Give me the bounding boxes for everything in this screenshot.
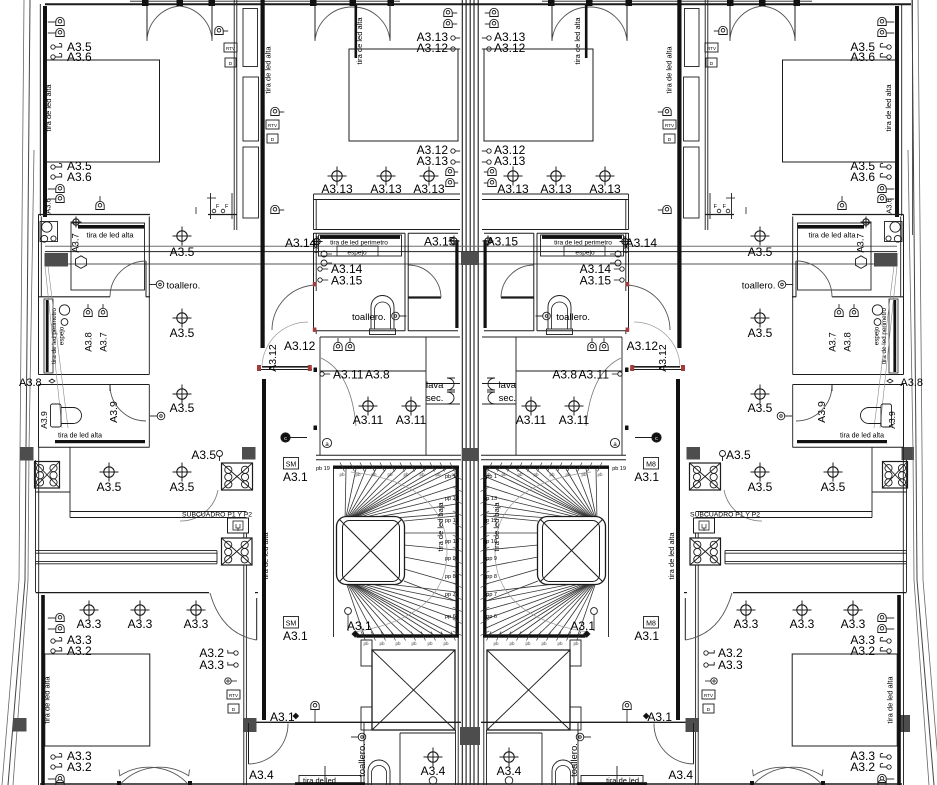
svg-text:tira de led alta: tira de led alta xyxy=(264,46,273,94)
svg-text:pp 7: pp 7 xyxy=(486,592,497,598)
svg-text:A3.5: A3.5 xyxy=(170,401,195,415)
svg-text:A3.15: A3.15 xyxy=(424,235,456,249)
svg-text:pb: pb xyxy=(411,641,417,646)
svg-text:A3.6: A3.6 xyxy=(67,50,92,64)
svg-text:A3.6: A3.6 xyxy=(850,170,875,184)
svg-text:A3.3: A3.3 xyxy=(77,617,102,631)
svg-text:pb: pb xyxy=(443,641,449,646)
svg-text:A3.11: A3.11 xyxy=(396,413,427,427)
svg-text:A3.9: A3.9 xyxy=(887,411,897,429)
svg-text:lava: lava xyxy=(426,380,444,391)
svg-text:A3.1: A3.1 xyxy=(270,710,295,724)
svg-text:A3.12: A3.12 xyxy=(627,339,659,353)
svg-text:A3.5: A3.5 xyxy=(170,326,195,340)
svg-text:espejo: espejo xyxy=(874,326,881,345)
svg-text:A3.8: A3.8 xyxy=(843,332,854,352)
svg-text:A3.5: A3.5 xyxy=(748,480,773,494)
svg-text:SM: SM xyxy=(286,621,297,628)
svg-text:pb 19: pb 19 xyxy=(612,466,626,472)
svg-text:pb: pb xyxy=(355,472,361,477)
svg-text:toallero.: toallero. xyxy=(357,743,368,777)
svg-text:tira de led alta: tira de led alta xyxy=(43,676,52,724)
svg-text:tira de led alta: tira de led alta xyxy=(261,532,270,580)
svg-text:pp 6: pp 6 xyxy=(445,614,456,620)
svg-text:D: D xyxy=(232,707,236,713)
svg-text:A3.13: A3.13 xyxy=(494,154,526,168)
svg-text:pp 9: pp 9 xyxy=(445,556,456,562)
svg-text:sec.: sec. xyxy=(499,393,516,404)
svg-text:A3.9: A3.9 xyxy=(108,401,120,423)
svg-text:A3.5: A3.5 xyxy=(748,401,773,415)
svg-text:tira de led alta: tira de led alta xyxy=(808,231,856,240)
svg-text:pp 10: pp 10 xyxy=(445,539,459,545)
svg-text:tira de led alta: tira de led alta xyxy=(840,433,884,440)
svg-text:tira de led perimetro: tira de led perimetro xyxy=(330,240,388,247)
svg-text:A3.2: A3.2 xyxy=(67,644,92,658)
svg-text:A3.2: A3.2 xyxy=(850,644,875,658)
svg-text:pp 8: pp 8 xyxy=(445,574,456,580)
svg-text:pb 1: pb 1 xyxy=(486,474,497,480)
svg-text:pb: pb xyxy=(573,641,579,646)
svg-text:tira de led alta: tira de led alta xyxy=(886,676,895,724)
svg-text:pb 1: pb 1 xyxy=(445,474,456,480)
svg-text:pb: pb xyxy=(379,641,385,646)
svg-text:A3.11: A3.11 xyxy=(579,368,610,382)
svg-text:A3.5: A3.5 xyxy=(191,448,216,462)
svg-text:A3.12: A3.12 xyxy=(494,41,526,55)
svg-text:A3.11: A3.11 xyxy=(559,413,590,427)
svg-text:pb: pb xyxy=(533,472,539,477)
svg-text:RTV: RTV xyxy=(665,123,674,128)
svg-text:A3.14: A3.14 xyxy=(285,236,317,250)
svg-text:A3.8: A3.8 xyxy=(84,332,95,352)
svg-text:M8: M8 xyxy=(646,462,656,469)
svg-text:A3.3: A3.3 xyxy=(790,617,815,631)
svg-text:D: D xyxy=(710,61,714,67)
svg-text:pb: pb xyxy=(541,641,547,646)
svg-text:A3.6: A3.6 xyxy=(44,198,53,213)
svg-text:pb: pb xyxy=(557,641,563,646)
svg-text:tira de led perimetro: tira de led perimetro xyxy=(554,240,612,247)
svg-text:A3.15: A3.15 xyxy=(487,235,519,249)
svg-text:A3.2: A3.2 xyxy=(850,760,875,774)
svg-text:A3.4: A3.4 xyxy=(249,768,274,782)
svg-text:M8: M8 xyxy=(646,621,656,628)
svg-text:A3.1: A3.1 xyxy=(283,470,308,484)
svg-text:pb: pb xyxy=(371,472,377,477)
svg-text:pb: pb xyxy=(403,472,409,477)
svg-text:A3.7: A3.7 xyxy=(71,233,82,253)
svg-text:A3.8: A3.8 xyxy=(365,368,390,382)
svg-text:pp 13: pp 13 xyxy=(483,496,497,502)
svg-text:A3.15: A3.15 xyxy=(580,274,612,288)
svg-text:pb: pb xyxy=(435,472,441,477)
svg-text:SM: SM xyxy=(286,462,297,469)
svg-text:pp 12: pp 12 xyxy=(445,518,459,524)
svg-text:pb: pb xyxy=(509,641,515,646)
svg-text:A3.3: A3.3 xyxy=(128,617,153,631)
svg-text:pb: pb xyxy=(493,641,499,646)
svg-text:tira de led perimetro: tira de led perimetro xyxy=(881,308,888,364)
svg-text:lava: lava xyxy=(499,380,517,391)
svg-text:A3.11: A3.11 xyxy=(516,413,547,427)
svg-text:D: D xyxy=(271,137,275,143)
svg-text:A3.7: A3.7 xyxy=(828,332,839,352)
svg-text:sec.: sec. xyxy=(426,393,443,404)
svg-text:tira de led alta: tira de led alta xyxy=(355,17,364,65)
svg-text:A3.9: A3.9 xyxy=(39,411,49,429)
svg-text:pp 7: pp 7 xyxy=(445,592,456,598)
svg-text:A3.1: A3.1 xyxy=(570,619,595,633)
svg-text:espejo: espejo xyxy=(575,250,595,257)
svg-text:A3.1: A3.1 xyxy=(283,629,308,643)
svg-text:pb: pb xyxy=(427,641,433,646)
svg-text:A3.12: A3.12 xyxy=(284,339,316,353)
svg-text:A3.1: A3.1 xyxy=(647,710,672,724)
svg-text:tira de led baja: tira de led baja xyxy=(436,502,445,552)
svg-text:A3.5: A3.5 xyxy=(97,480,122,494)
svg-text:A3.3: A3.3 xyxy=(184,617,209,631)
svg-text:toallero.: toallero. xyxy=(167,281,201,292)
svg-text:pb: pb xyxy=(339,472,345,477)
svg-text:A3.3: A3.3 xyxy=(841,617,866,631)
svg-text:A3.5: A3.5 xyxy=(726,448,751,462)
svg-text:pb: pb xyxy=(565,472,571,477)
svg-text:A3.3: A3.3 xyxy=(718,658,743,672)
svg-text:pp 8: pp 8 xyxy=(486,574,497,580)
svg-text:A3.4: A3.4 xyxy=(421,764,446,778)
svg-text:A3.12: A3.12 xyxy=(267,344,279,372)
svg-text:A3.6: A3.6 xyxy=(850,50,875,64)
svg-text:A3.14: A3.14 xyxy=(626,236,658,250)
svg-text:tira de led alta: tira de led alta xyxy=(667,532,676,580)
svg-text:A3.8: A3.8 xyxy=(552,368,577,382)
svg-text:toallero.: toallero. xyxy=(556,312,590,323)
svg-text:espejo: espejo xyxy=(59,326,66,345)
svg-text:D: D xyxy=(229,61,233,67)
svg-text:c: c xyxy=(284,436,287,442)
svg-text:pb: pb xyxy=(419,472,425,477)
svg-text:tira de led baja: tira de led baja xyxy=(492,502,501,552)
svg-text:pb: pb xyxy=(363,641,369,646)
svg-text:A3.5: A3.5 xyxy=(170,245,195,259)
svg-text:RTV: RTV xyxy=(226,46,235,51)
svg-text:A3.4: A3.4 xyxy=(497,764,522,778)
svg-text:RTV: RTV xyxy=(704,693,713,698)
svg-text:D: D xyxy=(668,137,672,143)
svg-text:A3.1: A3.1 xyxy=(634,470,659,484)
svg-text:A3.13: A3.13 xyxy=(417,154,449,168)
svg-text:pp 6: pp 6 xyxy=(486,614,497,620)
svg-text:pb 19: pb 19 xyxy=(316,466,330,472)
svg-text:pp 9: pp 9 xyxy=(486,556,497,562)
svg-text:RTV: RTV xyxy=(229,693,238,698)
svg-text:toallero.: toallero. xyxy=(352,312,386,323)
svg-text:tira de led alta: tira de led alta xyxy=(573,17,582,65)
svg-text:A3.12: A3.12 xyxy=(657,344,669,372)
svg-text:pb: pb xyxy=(549,472,555,477)
svg-text:A3.15: A3.15 xyxy=(331,274,363,288)
svg-text:tira de led alta: tira de led alta xyxy=(884,84,893,132)
svg-text:pb: pb xyxy=(597,472,603,477)
svg-text:A3.12: A3.12 xyxy=(417,41,449,55)
svg-text:A3.4: A3.4 xyxy=(668,768,693,782)
svg-text:toallero.: toallero. xyxy=(742,281,776,292)
svg-text:A3.6: A3.6 xyxy=(67,170,92,184)
svg-text:c: c xyxy=(655,436,658,442)
svg-text:A3.3: A3.3 xyxy=(734,617,759,631)
svg-text:pb: pb xyxy=(517,472,523,477)
svg-text:pp 13: pp 13 xyxy=(445,496,459,502)
svg-text:pb: pb xyxy=(395,641,401,646)
svg-text:A3.11: A3.11 xyxy=(333,368,364,382)
svg-text:A3.5: A3.5 xyxy=(821,480,846,494)
svg-text:A3.5: A3.5 xyxy=(748,326,773,340)
svg-text:A3.5: A3.5 xyxy=(748,245,773,259)
svg-text:tira de led alta: tira de led alta xyxy=(44,84,53,132)
svg-text:A3.11: A3.11 xyxy=(353,413,384,427)
svg-text:tira de led alta: tira de led alta xyxy=(665,46,674,94)
svg-text:A3.1: A3.1 xyxy=(634,629,659,643)
svg-text:pb: pb xyxy=(525,641,531,646)
svg-text:tira de led alta: tira de led alta xyxy=(86,231,134,240)
svg-text:pb: pb xyxy=(501,472,507,477)
svg-text:D: D xyxy=(707,707,711,713)
svg-text:A3.6: A3.6 xyxy=(885,198,894,213)
svg-text:tira de led alta: tira de led alta xyxy=(58,433,102,440)
svg-text:RTV: RTV xyxy=(707,46,716,51)
svg-text:A3.2: A3.2 xyxy=(67,760,92,774)
svg-text:A3.1: A3.1 xyxy=(347,619,372,633)
svg-text:pb: pb xyxy=(387,472,393,477)
svg-text:A3.5: A3.5 xyxy=(170,480,195,494)
svg-text:RTV: RTV xyxy=(268,123,277,128)
svg-text:pb: pb xyxy=(581,472,587,477)
svg-text:A3.7: A3.7 xyxy=(856,233,867,253)
svg-text:A3.3: A3.3 xyxy=(199,658,224,672)
svg-text:espejo: espejo xyxy=(347,250,367,257)
svg-text:A3.7: A3.7 xyxy=(99,332,110,352)
